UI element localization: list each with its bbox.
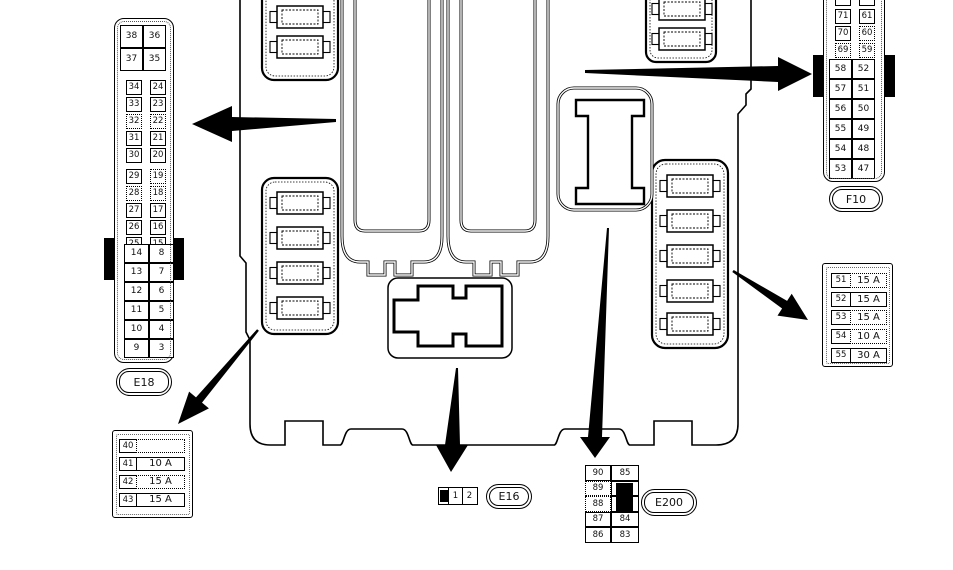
terminal-cell: 85	[611, 465, 639, 481]
terminal-cell: 58	[829, 59, 852, 79]
e18-section-d: 14 8 13 7 12 6 11 5 10 4 9 3	[124, 244, 174, 358]
fuse-row: 43 15 A	[119, 493, 185, 507]
terminal-cell: 89	[585, 481, 611, 497]
fuse-rating: 10 A	[136, 457, 185, 471]
e18-row: 34 24	[126, 80, 166, 95]
fuse-number: 54	[831, 329, 851, 344]
e18-row: 29 19	[126, 169, 166, 184]
terminal-cell: 84	[611, 512, 639, 528]
e18-section-a: 38 36 37 35	[120, 25, 166, 71]
fuse-row: 42 15 A	[119, 475, 185, 489]
f10-row: 70 60	[835, 26, 875, 41]
terminal-cell: 36	[143, 25, 166, 48]
terminal-cell: 29	[126, 169, 142, 184]
terminal-cell: 62	[859, 0, 875, 6]
fuse-row: 55 30 A	[831, 348, 887, 363]
mounting-tab-f10-right	[885, 55, 895, 97]
terminal-cell: 24	[150, 80, 166, 95]
fuse-row: 54 10 A	[831, 329, 887, 344]
terminal-cell: 3	[149, 339, 174, 358]
terminal-cell: 34	[126, 80, 142, 95]
terminal-cell: 21	[150, 131, 166, 146]
fuse-row: 51 15 A	[831, 273, 887, 288]
arrow-to-e18	[192, 106, 336, 142]
terminal-cell: 37	[120, 48, 143, 71]
terminal-cell: 83	[611, 527, 639, 543]
connector-label-e18: E18	[116, 368, 172, 396]
terminal-cell: 18	[150, 186, 166, 201]
arrow-to-e200	[580, 228, 610, 458]
terminal-cell: 69	[835, 43, 851, 58]
terminal-cell: 23	[150, 97, 166, 112]
terminal-cell: 51	[852, 79, 875, 99]
terminal-cell: 61	[859, 9, 875, 24]
connector-label-text: E16	[489, 487, 529, 506]
terminal-cell: 32	[126, 114, 142, 129]
e18-row: 32 22	[126, 114, 166, 129]
mounting-tab-e18-right	[174, 238, 184, 280]
terminal-cell: 5	[149, 301, 174, 320]
keying-block	[440, 490, 448, 502]
terminal-cell: 57	[829, 79, 852, 99]
fuse-number: 40	[119, 439, 137, 453]
fuse-box-outline	[240, 0, 751, 445]
fuse-number: 52	[831, 292, 851, 307]
connector-table-f10: 72 62 71 61 70 60 69 59 58 52 57 51 56 5…	[823, 0, 885, 182]
mounting-tab-f10-left	[813, 55, 823, 97]
fuse-number: 51	[831, 273, 851, 288]
terminal-cell: 56	[829, 99, 852, 119]
terminal-cell: 53	[829, 159, 852, 179]
terminal-cell: 49	[852, 119, 875, 139]
terminal-cell: 8	[149, 244, 174, 263]
terminal-cell: 47	[852, 159, 875, 179]
bus-channel-2	[448, 0, 548, 275]
terminal-cell: 6	[149, 282, 174, 301]
terminal-cell: 19	[150, 169, 166, 184]
terminal-cell: 60	[859, 26, 875, 41]
connector-table-e18: 38 36 37 35 34 24 33 23 32 22 31 21 30 2…	[114, 18, 174, 363]
f10-row: 72 62	[835, 0, 875, 6]
fuse-row: 41 10 A	[119, 457, 185, 471]
terminal-cell: 2	[462, 488, 476, 504]
fuse-number: 55	[831, 348, 851, 363]
terminal-cell: 22	[150, 114, 166, 129]
connector-label-e200: E200	[641, 489, 697, 516]
terminal-cell: 31	[126, 131, 142, 146]
terminal-cell: 38	[120, 25, 143, 48]
fuse-rating: 15 A	[850, 310, 887, 325]
fuse-number: 43	[119, 493, 137, 507]
fuse-table-bottom-left: 40 41 10 A 42 15 A 43 15 A	[112, 430, 193, 518]
fuse-rating: 15 A	[850, 292, 887, 307]
fuse-row: 40	[119, 439, 185, 453]
plug-e16-outline	[388, 278, 512, 358]
arrow-to-e16	[436, 368, 468, 472]
terminal-cell: 20	[150, 148, 166, 163]
terminal-cell: 72	[835, 0, 851, 6]
terminal-cell: 10	[124, 320, 149, 339]
fuse-number: 42	[119, 475, 137, 489]
connector-block-left-middle	[262, 178, 338, 334]
f10-section-bottom: 58 52 57 51 56 50 55 49 54 48 53 47	[829, 59, 875, 179]
relay-bracket	[558, 88, 652, 210]
terminal-cell: 52	[852, 59, 875, 79]
terminal-cell: 9	[124, 339, 149, 358]
fuse-table-right: 51 15 A 52 15 A 53 15 A 54 10 A 55 30 A	[822, 263, 893, 367]
terminal-cell: 16	[150, 220, 166, 235]
e18-row: 28 18	[126, 186, 166, 201]
terminal-cell: 12	[124, 282, 149, 301]
terminal-cell: 90	[585, 465, 611, 481]
terminal-cell: 87	[585, 512, 611, 528]
terminal-cell: 11	[124, 301, 149, 320]
arrow-to-fuse-table-bottom-left	[178, 329, 259, 424]
fuse-number: 53	[831, 310, 851, 325]
fuse-rating	[136, 439, 185, 453]
terminal-cell: 59	[859, 43, 875, 58]
terminal-cell: 4	[149, 320, 174, 339]
keying-block	[616, 483, 633, 512]
terminal-cell: 27	[126, 203, 142, 218]
terminal-cell: 70	[835, 26, 851, 41]
fuse-rating: 30 A	[850, 348, 887, 363]
fuse-rating: 15 A	[136, 475, 185, 489]
connector-block-right	[652, 160, 728, 348]
f10-row: 71 61	[835, 9, 875, 24]
terminal-cell: 33	[126, 97, 142, 112]
terminal-cell: 14	[124, 244, 149, 263]
terminal-cell: 28	[126, 186, 142, 201]
e18-row: 26 16	[126, 220, 166, 235]
fuse-row: 53 15 A	[831, 310, 887, 325]
terminal-cell: 7	[149, 263, 174, 282]
e18-row: 27 17	[126, 203, 166, 218]
terminal-cell: 71	[835, 9, 851, 24]
fuse-box-diagram-page: 38 36 37 35 34 24 33 23 32 22 31 21 30 2…	[0, 0, 953, 570]
connector-e200: 90 85 89 88 87 84 86 83	[585, 465, 642, 545]
terminal-cell: 50	[852, 99, 875, 119]
connector-label-text: E18	[119, 371, 169, 393]
connector-label-e16: E16	[486, 484, 532, 509]
connector-e16: 1 2	[438, 487, 478, 505]
fuse-number: 41	[119, 457, 137, 471]
terminal-cell: 48	[852, 139, 875, 159]
terminal-cell: 54	[829, 139, 852, 159]
terminal-cell: 30	[126, 148, 142, 163]
terminal-cell: 88	[585, 496, 611, 512]
terminal-cell: 86	[585, 527, 611, 543]
fuse-rating: 10 A	[850, 329, 887, 344]
e18-row: 30 20	[126, 148, 166, 163]
fuse-rating: 15 A	[136, 493, 185, 507]
connector-label-text: F10	[832, 189, 880, 209]
connector-label-text: E200	[644, 492, 694, 513]
terminal-cell: 13	[124, 263, 149, 282]
arrow-to-fuse-table-right	[732, 270, 808, 320]
f10-row: 69 59	[835, 43, 875, 58]
e18-row: 31 21	[126, 131, 166, 146]
mounting-tab-e18-left	[104, 238, 114, 280]
terminal-cell: 17	[150, 203, 166, 218]
terminal-cell: 55	[829, 119, 852, 139]
connector-block-top-left	[262, 0, 338, 80]
bus-channel-1	[342, 0, 442, 275]
terminal-cell: 26	[126, 220, 142, 235]
fuse-rating: 15 A	[850, 273, 887, 288]
terminal-cell: 1	[448, 488, 462, 504]
terminal-cell: 35	[143, 48, 166, 71]
connector-block-top-right	[646, 0, 716, 62]
connector-label-f10: F10	[829, 186, 883, 212]
fuse-row: 52 15 A	[831, 292, 887, 307]
e18-row: 33 23	[126, 97, 166, 112]
